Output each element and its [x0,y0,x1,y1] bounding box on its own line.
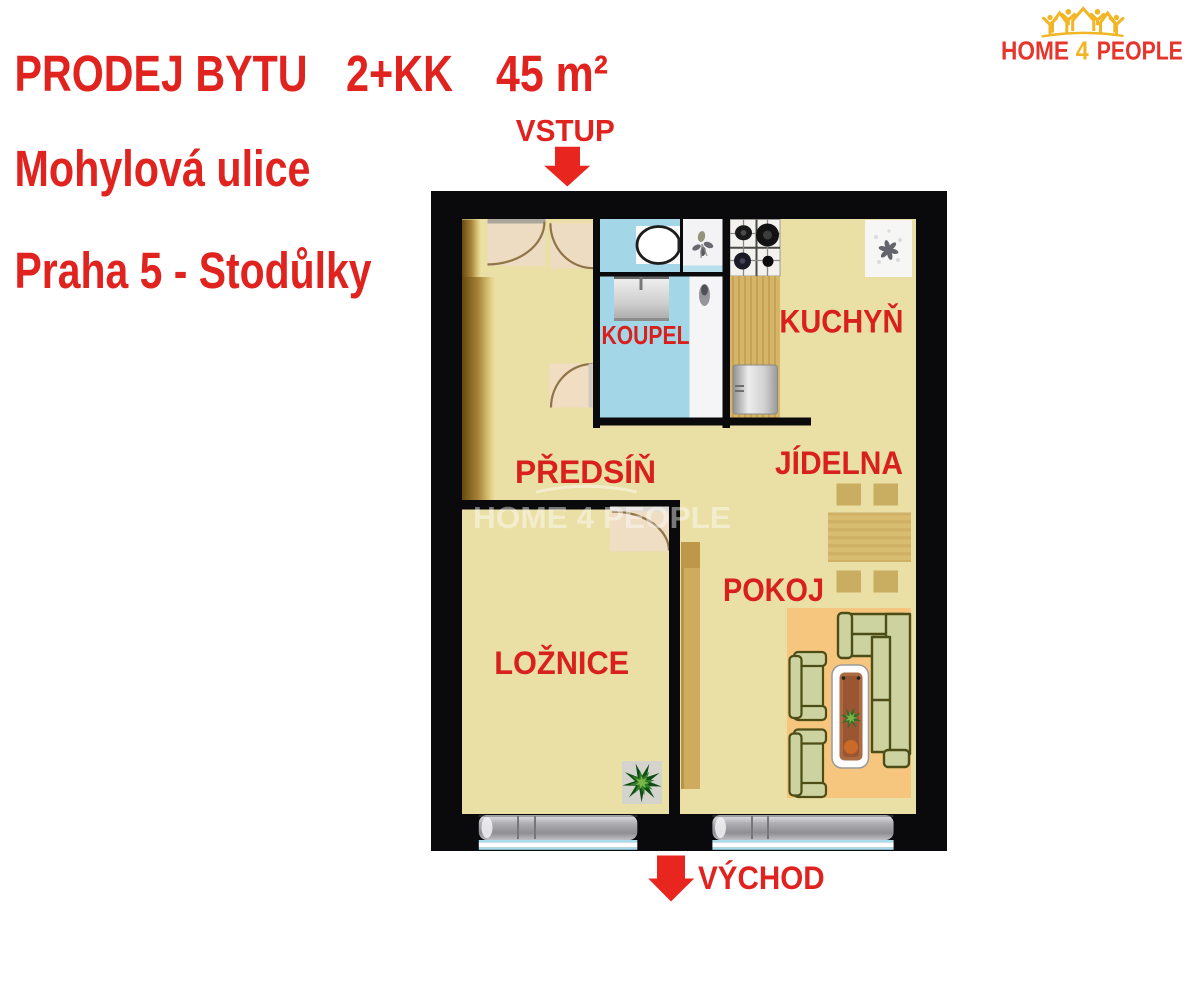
svg-text:VSTUP: VSTUP [516,113,615,148]
svg-text:45 m²: 45 m² [496,45,608,102]
svg-text:LOŽNICE: LOŽNICE [494,645,629,681]
svg-text:PEOPLE: PEOPLE [1097,36,1183,66]
svg-text:KOUPEL: KOUPEL [602,320,690,350]
svg-text:KUCHYŇ: KUCHYŇ [779,304,903,340]
svg-text:HOME 4 PEOPLE: HOME 4 PEOPLE [473,500,731,535]
svg-text:PŘEDSÍŇ: PŘEDSÍŇ [515,454,656,490]
svg-text:Praha 5 - Stodůlky: Praha 5 - Stodůlky [15,242,372,299]
svg-text:HOME: HOME [1001,36,1069,66]
svg-text:JÍDELNA: JÍDELNA [775,445,903,481]
svg-text:POKOJ: POKOJ [723,572,824,608]
svg-text:2+KK: 2+KK [346,45,453,102]
svg-text:Mohylová ulice: Mohylová ulice [15,140,311,197]
svg-text:PRODEJ BYTU: PRODEJ BYTU [15,45,308,102]
svg-text:4: 4 [1076,36,1089,66]
svg-text:VÝCHOD: VÝCHOD [698,860,825,896]
